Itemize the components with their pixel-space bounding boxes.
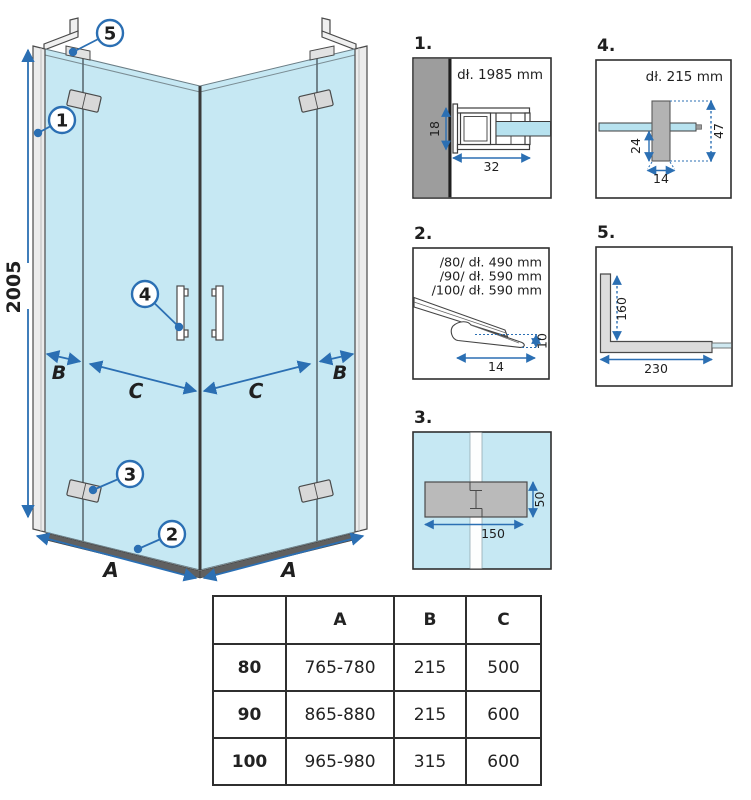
detail-2-drawing: /80/ dł. 490 mm /90/ dł. 590 mm /100/ dł… [412, 247, 550, 380]
detail-2-number: 2. [414, 224, 432, 244]
table-header-row: A B C [213, 596, 541, 644]
table-header-a: A [286, 596, 394, 644]
table-row: 90 865-880 215 600 [213, 691, 541, 738]
table-cell-b: 215 [394, 691, 466, 738]
detail-5-dim-160: 160 [614, 297, 629, 321]
callout-2-number: 2 [166, 525, 179, 546]
detail-5-number: 5. [597, 223, 615, 243]
dim-c-left-label: C [129, 379, 144, 403]
detail-4-dim-47: 47 [711, 123, 726, 139]
detail-3-dim-50: 50 [532, 492, 547, 508]
detail-5-dim-230: 230 [644, 361, 668, 376]
detail-4-drawing: dł. 215 mm 47 24 14 [595, 59, 732, 199]
table-cell-size: 90 [213, 691, 286, 738]
detail-1-drawing: dł. 1985 mm 18 32 [412, 57, 552, 199]
table-cell-a: 965-980 [286, 738, 394, 785]
dim-c-right-label: C [249, 379, 264, 403]
detail-1-dim-32: 32 [484, 159, 500, 174]
detail-1-title: dł. 1985 mm [457, 67, 543, 83]
callout-5-number: 5 [104, 24, 117, 45]
dim-b-right-label: B [333, 362, 347, 384]
table-row: 80 765-780 215 500 [213, 644, 541, 691]
main-drawing: 2005 B C C B A A [0, 0, 400, 620]
table-header-c: C [466, 596, 541, 644]
table-cell-b: 215 [394, 644, 466, 691]
table-cell-size: 100 [213, 738, 286, 785]
dim-a-left-label: A [101, 558, 118, 582]
shower-enclosure-dimension-sheet: 2005 B C C B A A [0, 0, 751, 800]
table-cell-c: 500 [466, 644, 541, 691]
detail-panel-5: 5. 160 230 [595, 246, 733, 387]
table-cell-b: 315 [394, 738, 466, 785]
wall-profile-left [33, 46, 45, 532]
table-cell-size: 80 [213, 644, 286, 691]
detail-5-drawing: 160 230 [595, 246, 733, 387]
callout-3-number: 3 [124, 465, 137, 486]
detail-3-drawing: 50 150 [412, 431, 552, 570]
detail-4-dim-24: 24 [628, 138, 643, 154]
detail-panel-4: 4. dł. 215 mm 47 [595, 59, 732, 199]
dim-b-left-label: B [52, 362, 66, 384]
detail-2-line-100: /100/ dł. 590 mm [432, 284, 542, 299]
detail-1-dim-18: 18 [427, 121, 442, 137]
detail-4-title: dł. 215 mm [646, 69, 723, 85]
table-cell-c: 600 [466, 691, 541, 738]
glass-strip-end [696, 125, 702, 129]
size-table: A B C 80 765-780 215 500 90 865-880 215 … [212, 595, 542, 786]
callout-4-number: 4 [139, 285, 152, 306]
glass-strip [496, 122, 551, 137]
glass-strip [599, 123, 696, 131]
detail-panel-3: 3. [412, 431, 552, 570]
height-dim-label: 2005 [3, 261, 25, 314]
detail-2-line-80: /80/ dł. 490 mm [440, 256, 542, 271]
top-brace-right [322, 18, 356, 50]
callout-1-number: 1 [56, 111, 69, 132]
glass-strip [712, 343, 732, 348]
wall-face-line [448, 59, 451, 197]
table-cell-c: 600 [466, 738, 541, 785]
dim-a-right-label: A [279, 558, 296, 582]
table-header-empty [213, 596, 286, 644]
detail-2-line-90: /90/ dł. 590 mm [440, 270, 542, 285]
table-cell-a: 765-780 [286, 644, 394, 691]
detail-2-dim-14: 14 [488, 359, 504, 374]
detail-3-dim-150: 150 [481, 526, 505, 541]
detail-panel-2: 2. /80/ dł. 490 mm /90/ dł. 590 mm /100/… [412, 247, 550, 380]
wall-profile-right [355, 46, 367, 532]
detail-4-number: 4. [597, 36, 615, 56]
table-header-b: B [394, 596, 466, 644]
detail-1-number: 1. [414, 34, 432, 54]
detail-4-dim-14: 14 [653, 171, 669, 186]
table-row: 100 965-980 315 600 [213, 738, 541, 785]
bracket-bar [652, 101, 670, 161]
detail-3-number: 3. [414, 408, 432, 428]
top-brace-left [44, 18, 78, 50]
detail-panel-1: 1. dł. 1985 mm [412, 57, 552, 199]
detail-2-dim-10: 10 [535, 333, 550, 349]
table-cell-a: 865-880 [286, 691, 394, 738]
